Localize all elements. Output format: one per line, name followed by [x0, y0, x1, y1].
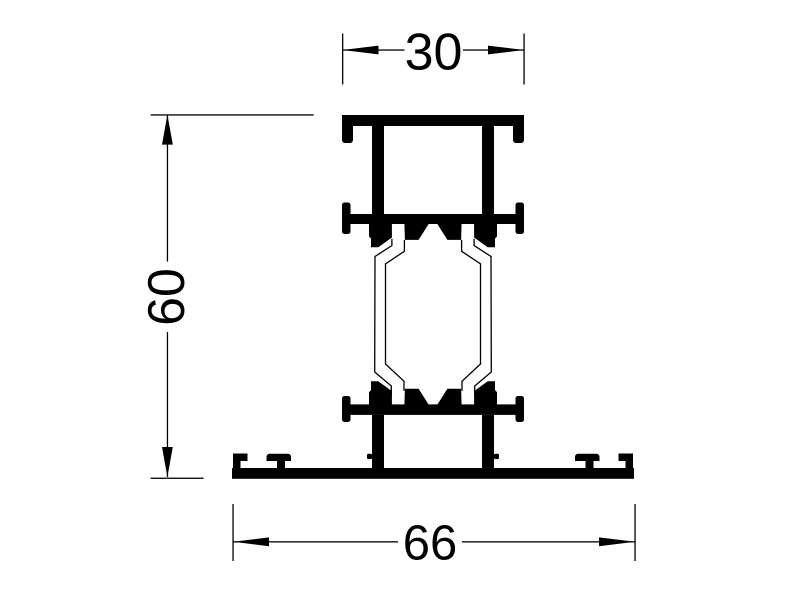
svg-text:66: 66 [403, 517, 458, 571]
svg-text:60: 60 [138, 268, 196, 326]
svg-text:30: 30 [405, 24, 463, 82]
